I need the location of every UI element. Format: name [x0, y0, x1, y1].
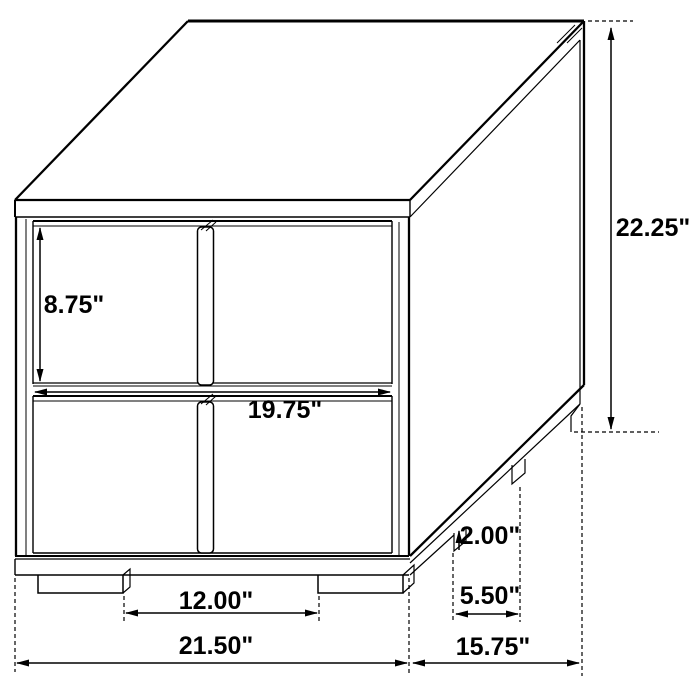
front-right-leg — [318, 575, 403, 593]
dim-leg-height-label: 2.00" — [460, 522, 521, 550]
top-band-bottom-right-edge — [410, 40, 580, 217]
dim-overall-height-label: 22.25" — [616, 214, 690, 242]
drawers — [33, 220, 392, 553]
top-right-edge — [410, 21, 584, 200]
extension-lines — [15, 21, 659, 676]
front-left-leg — [38, 575, 123, 593]
dim-overall-width-label: 21.50" — [179, 632, 253, 660]
dim-side-leg-spacing-label: 5.50" — [460, 582, 521, 610]
top-drawer-pull — [198, 227, 214, 385]
dim-overall-depth-label: 15.75" — [456, 633, 530, 661]
dimensions — [17, 28, 611, 663]
nightstand-dimension-diagram: 8.75" 22.25" 19.75" 12.00" 21.50" 2.00" … — [0, 0, 700, 700]
dim-drawer-front-height-label: 8.75" — [44, 291, 105, 319]
dimension-labels: 8.75" 22.25" 19.75" 12.00" 21.50" 2.00" … — [44, 214, 690, 661]
legs — [38, 459, 525, 593]
bottom-drawer-pull — [198, 402, 214, 553]
side-back-leg — [512, 459, 525, 484]
diagram-canvas: 8.75" 22.25" 19.75" 12.00" 21.50" 2.00" … — [0, 0, 700, 700]
top-left-edge — [15, 21, 188, 200]
front-left-leg-side-face — [123, 569, 130, 593]
dim-front-leg-spacing-label: 12.00" — [179, 587, 253, 615]
dim-drawer-front-width-label: 19.75" — [248, 396, 322, 424]
base-side-bottom-segment — [410, 535, 454, 575]
